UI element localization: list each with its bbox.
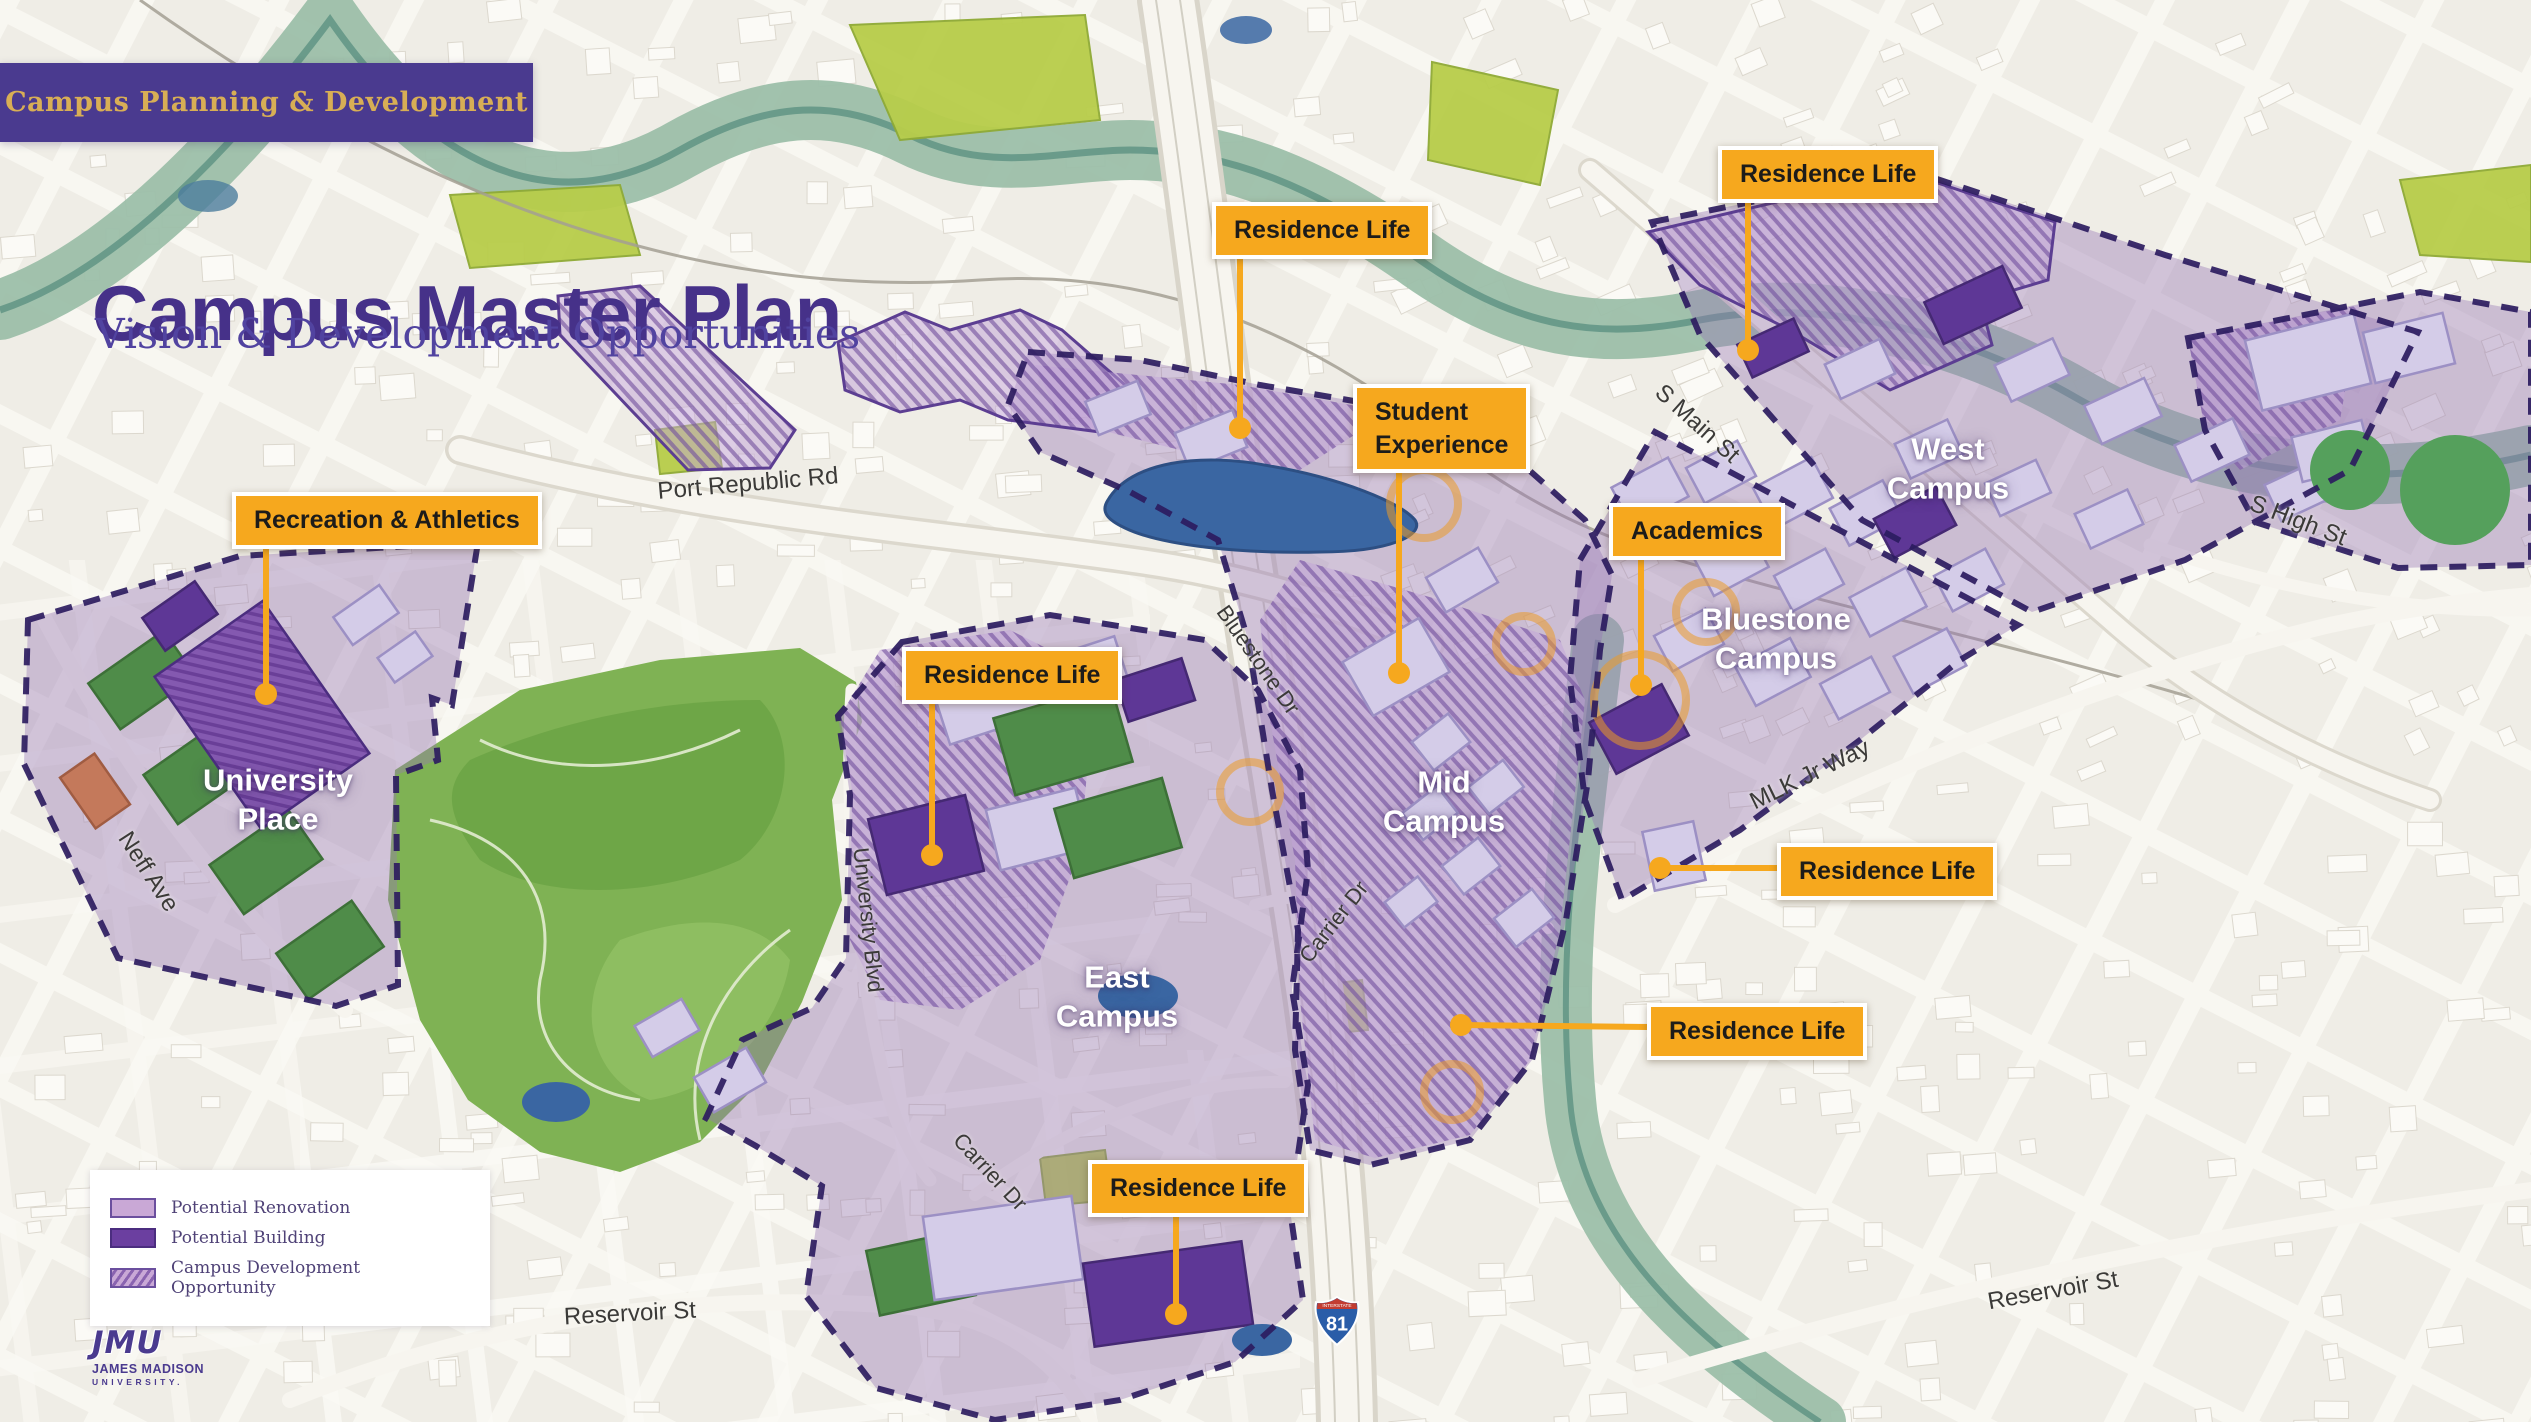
legend-item-renovation: Potential Renovation: [110, 1198, 470, 1218]
legend-label: Campus Development Opportunity: [171, 1258, 470, 1298]
area-label-mid-campus: Mid Campus: [1383, 763, 1505, 841]
campus-master-plan-page: Campus Planning & Development Campus Mas…: [0, 0, 2531, 1422]
interstate-81-shield-icon: INTERSTATE 81: [1314, 1294, 1360, 1348]
area-label-bluestone-campus: Bluestone Campus: [1701, 600, 1851, 678]
callout-recreation-athletics[interactable]: Recreation & Athletics: [232, 492, 542, 549]
legend-item-building: Potential Building: [110, 1228, 470, 1248]
development-swatch-icon: [110, 1268, 156, 1288]
area-label-west-campus: West Campus: [1887, 430, 2009, 508]
legend-item-development: Campus Development Opportunity: [110, 1258, 470, 1298]
renovation-swatch-icon: [110, 1198, 156, 1218]
callout-residence-life-mlk[interactable]: Residence Life: [1777, 843, 1997, 900]
area-label-university-place: University Place: [203, 761, 353, 839]
svg-text:81: 81: [1326, 1313, 1348, 1335]
callout-residence-life-south[interactable]: Residence Life: [1088, 1160, 1308, 1217]
department-badge: Campus Planning & Development: [0, 63, 533, 142]
callout-residence-life-main-st[interactable]: Residence Life: [1718, 146, 1938, 203]
callout-residence-life-hillside[interactable]: Residence Life: [1647, 1003, 1867, 1060]
jmu-logo-line1: JAMES MADISON: [92, 1363, 204, 1376]
svg-text:INTERSTATE: INTERSTATE: [1322, 1303, 1351, 1309]
building-swatch-icon: [110, 1228, 156, 1248]
jmu-logo-line2: UNIVERSITY.: [92, 1378, 204, 1387]
jmu-logo-acronym: JMU: [92, 1328, 204, 1359]
callout-residence-life-east[interactable]: Residence Life: [902, 647, 1122, 704]
page-subtitle: Vision & Development Opportunities: [95, 312, 860, 357]
callout-residence-life-pond[interactable]: Residence Life: [1212, 202, 1432, 259]
map-legend: Potential Renovation Potential Building …: [90, 1170, 490, 1326]
jmu-logo: JMU JAMES MADISON UNIVERSITY.: [92, 1328, 204, 1386]
department-badge-label: Campus Planning & Development: [5, 87, 528, 118]
area-label-east-campus: East Campus: [1056, 958, 1178, 1036]
legend-label: Potential Building: [171, 1228, 326, 1248]
legend-label: Potential Renovation: [171, 1198, 350, 1218]
callout-academics[interactable]: Academics: [1609, 503, 1785, 560]
callout-student-experience[interactable]: Student Experience: [1353, 384, 1530, 473]
